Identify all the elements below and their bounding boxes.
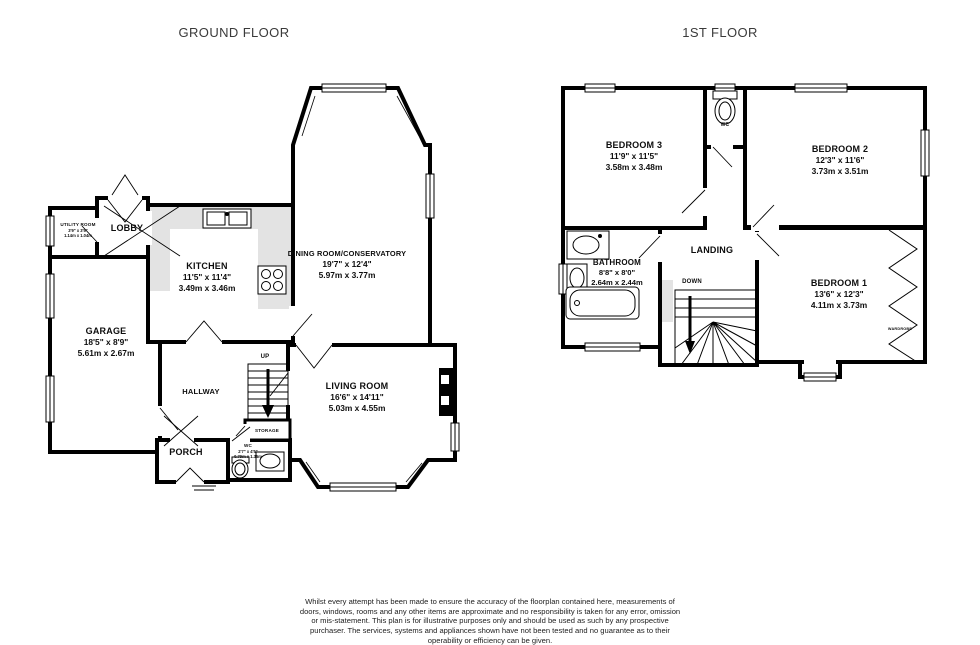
lobby-name: LOBBY [111,223,144,234]
landing-recess [662,280,673,322]
kitchen-metric: 3.49m x 3.46m [179,283,236,294]
room-label-wc-ground: WC 2'7" x 4'5" 0.79m x 1.35m [234,443,262,459]
bathroom-metric: 2.64m x 2.44m [591,278,643,288]
stairs-down-label: DOWN [682,279,702,286]
first-floor-drawing [555,78,945,388]
bedroom-2-imperial: 12'3" x 11'6" [812,155,869,166]
room-label-dining-room: DINING ROOM/CONSERVATORY 19'7" x 12'4" 5… [288,249,407,280]
wc-ground-imperial: 2'7" x 4'5" [234,449,262,454]
utility-metric: 1.14m x 1.04m [60,233,95,238]
kitchen-imperial: 11'5" x 11'4" [179,272,236,283]
kitchen-name: KITCHEN [179,261,236,272]
room-label-bedroom-3: BEDROOM 3 11'9" x 11'5" 3.58m x 3.48m [606,140,663,172]
first-floor-title: 1ST FLOOR [682,25,758,40]
porch-name: PORCH [169,447,203,458]
wc-first-name: WC [721,122,730,128]
bedroom-3-metric: 3.58m x 3.48m [606,162,663,173]
down-text: DOWN [682,279,702,286]
room-label-kitchen: KITCHEN 11'5" x 11'4" 3.49m x 3.46m [179,261,236,293]
chimney [439,368,457,416]
up-text: UP [261,354,270,361]
dining-room-name: DINING ROOM/CONSERVATORY [288,249,407,259]
disclaimer-text: Whilst every attempt has been made to en… [299,597,681,645]
garage-imperial: 18'5" x 8'9" [78,337,135,348]
bedroom-1-imperial: 13'6" x 12'3" [811,289,867,300]
wardrobe-name: WARDROBE [888,327,912,332]
bedroom-1-name: BEDROOM 1 [811,278,867,289]
kitchen-sink-icon [203,209,251,228]
storage-name: STORAGE [255,428,279,434]
bedroom-1-metric: 4.11m x 3.73m [811,300,867,311]
garage-metric: 5.61m x 2.67m [78,348,135,359]
landing-name: LANDING [691,245,733,256]
room-label-porch: PORCH [169,447,203,458]
utility-name: UTILITY ROOM [60,222,95,228]
hallway-name: HALLWAY [182,386,219,397]
room-label-lobby: LOBBY [111,223,144,234]
room-label-bedroom-1: BEDROOM 1 13'6" x 12'3" 4.11m x 3.73m [811,278,867,310]
bedroom-2-name: BEDROOM 2 [812,144,869,155]
bedroom-2-metric: 3.73m x 3.51m [812,166,869,177]
bedroom-3-name: BEDROOM 3 [606,140,663,151]
room-label-garage: GARAGE 18'5" x 8'9" 5.61m x 2.67m [78,326,135,358]
living-room-name: LIVING ROOM [326,381,389,392]
room-label-bedroom-2: BEDROOM 2 12'3" x 11'6" 3.73m x 3.51m [812,144,869,176]
floorplan-page: GROUND FLOOR 1ST FLOOR [0,0,980,645]
wc-ground-metric: 0.79m x 1.35m [234,454,262,459]
footer-disclaimer: Whilst every attempt has been made to en… [299,597,681,645]
room-label-hallway: HALLWAY [182,386,219,397]
bedroom-3-imperial: 11'9" x 11'5" [606,151,663,162]
ground-floor-title: GROUND FLOOR [179,25,290,40]
room-label-wc-first: WC [721,122,730,128]
room-label-landing: LANDING [691,245,733,256]
first-walls [563,88,925,377]
first-wc-toilet-icon [713,91,737,124]
room-label-utility: UTILITY ROOM 3'9" x 3'5" 1.14m x 1.04m [60,222,95,238]
room-label-wardrobe: WARDROBE [888,327,912,332]
garage-name: GARAGE [78,326,135,337]
stairs-up-label: UP [261,354,270,361]
dining-room-imperial: 19'7" x 12'4" [288,259,407,270]
room-label-bathroom: BATHROOM 8'8" x 8'0" 2.64m x 2.44m [591,258,643,287]
room-label-living-room: LIVING ROOM 16'6" x 14'11" 5.03m x 4.55m [326,381,389,413]
kitchen-hob-icon [258,266,286,294]
living-room-metric: 5.03m x 4.55m [326,403,389,414]
room-label-storage: STORAGE [255,428,279,434]
bathroom-name: BATHROOM [591,258,643,268]
bathroom-imperial: 8'8" x 8'0" [591,268,643,278]
living-room-imperial: 16'6" x 14'11" [326,392,389,403]
porch-steps [192,486,216,490]
dining-room-metric: 5.97m x 3.77m [288,270,407,281]
